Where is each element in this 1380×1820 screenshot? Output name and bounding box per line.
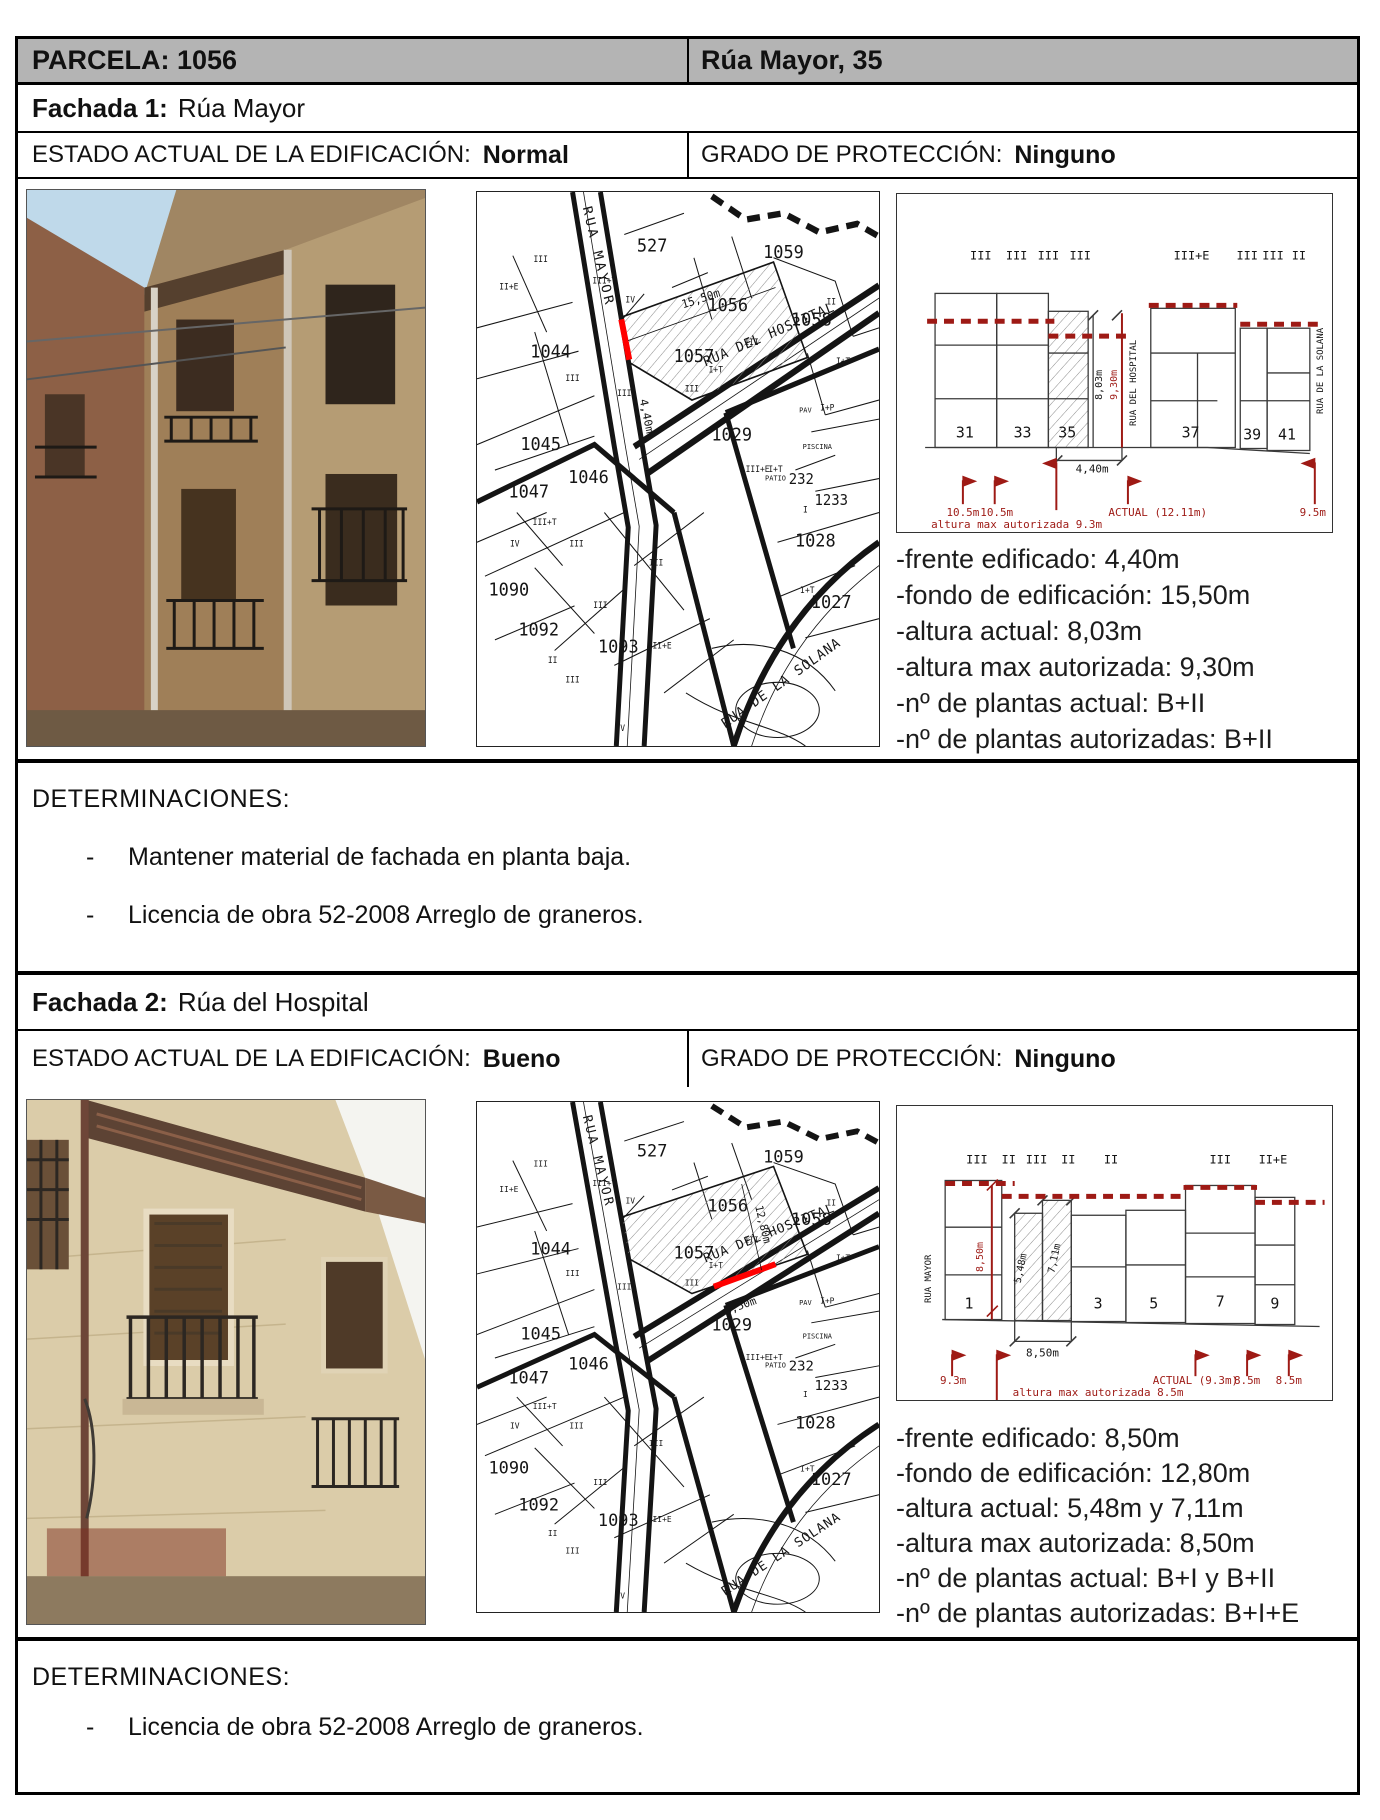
drawing-label: I+T [800, 585, 814, 595]
drawing-label: III [744, 337, 758, 347]
drawing-label: 1233 [814, 493, 848, 510]
drawing-label: RUA DEL HOSPITAL [1129, 340, 1139, 426]
drawing-label: 527 [637, 236, 668, 257]
drawing-label: III [593, 1478, 607, 1487]
drawing-label: III [966, 1153, 988, 1167]
drawing-label: 31 [956, 424, 974, 442]
drawing-label: PISCINA [803, 1332, 833, 1340]
drawing-label: III [617, 1283, 631, 1292]
drawing-label: 1046 [568, 467, 609, 488]
drawing-label: I+T [709, 364, 723, 374]
parcel-address: Rúa Mayor, 35 [701, 45, 883, 76]
drawing-label: 8.5m [1234, 1374, 1261, 1387]
drawing-label: III [1262, 249, 1284, 263]
drawing-label: I+T [800, 1464, 815, 1473]
drawing-label: 1047 [508, 482, 549, 503]
drawing-label: IV [510, 1421, 520, 1430]
drawing-label: 3 [1094, 1295, 1103, 1313]
drawing-label: III [565, 373, 579, 383]
drawing-label: II+E [653, 1515, 672, 1524]
grado-1-value: Ninguno [1014, 141, 1115, 170]
drawing-label: 8,03m [1094, 370, 1105, 400]
determinacion-text: Licencia de obra 52-2008 Arreglo de gran… [128, 901, 644, 930]
drawing-label: PATIO [765, 473, 786, 482]
detail-line: -frente edificado: 8,50m [896, 1421, 1356, 1456]
header-row: PARCELA: 1056 Rúa Mayor, 35 [18, 39, 1357, 85]
estado-1-cell: ESTADO ACTUAL DE LA EDIFICACIÓN: Normal [18, 133, 689, 177]
drawing-label: 8,50m [975, 1242, 986, 1272]
drawing-label: III [1236, 249, 1258, 263]
drawing-label: III [569, 1421, 583, 1430]
detail-line: -altura actual: 5,48m y 7,11m [896, 1491, 1356, 1526]
drawing-label: III [593, 600, 607, 610]
drawing-label: 1 [965, 1295, 974, 1313]
drawing-label: III [649, 1439, 663, 1448]
drawing-label: III [685, 1279, 699, 1288]
drawing-label: IV [625, 294, 635, 304]
drawing-label: I+P [820, 402, 834, 412]
elevation-drawing-1: IIIIIIIIIIIIIII+EIIIIIIIIRUA DEL HOSPITA… [896, 193, 1333, 533]
dash-bullet: - [86, 901, 128, 930]
drawing-label: 1029 [711, 1315, 752, 1335]
drawing-label: III+T [533, 517, 557, 527]
drawing-label: 1059 [763, 242, 804, 263]
detail-line: -nº de plantas actual: B+II [896, 685, 1356, 721]
fachada-2-row: Fachada 2: Rúa del Hospital [18, 971, 1357, 1029]
grado-1-cell: GRADO DE PROTECCIÓN: Ninguno [689, 133, 1357, 177]
estado-1-label: ESTADO ACTUAL DE LA EDIFICACIÓN: [32, 141, 471, 169]
drawing-label: II+E [499, 1185, 518, 1194]
facade-photo-1 [26, 189, 426, 747]
content-row-1: RUA MAYORRUA DEL HOSPITALRUA DE LA SOLAN… [18, 179, 1357, 759]
drawing-label: II [1002, 1153, 1016, 1167]
drawing-label: 8.5m [1276, 1374, 1303, 1387]
detail-line: -altura max autorizada: 9,30m [896, 649, 1356, 685]
drawing-label: I+T [768, 464, 782, 474]
drawing-label: 9,30m [1109, 370, 1120, 400]
drawing-label: altura max autorizada 8.5m [1013, 1386, 1184, 1399]
drawing-label: 33 [1014, 424, 1032, 442]
authorized-height-lines [927, 305, 1325, 447]
drawing-label: PATIO [765, 1362, 786, 1370]
drawing-label: 1027 [811, 593, 852, 614]
grado-2-cell: GRADO DE PROTECCIÓN: Ninguno [689, 1031, 1357, 1087]
drawing-label: 1233 [814, 1378, 848, 1394]
determinacion-text: Mantener material de fachada en planta b… [128, 843, 631, 872]
drawing-label: III [565, 674, 579, 684]
grado-2-value: Ninguno [1014, 1045, 1115, 1074]
drawing-label: RUA DE LA SOLANA [719, 635, 844, 732]
determinacion-item: - Licencia de obra 52-2008 Arreglo de gr… [86, 1713, 644, 1742]
drawing-label: 1044 [530, 342, 571, 363]
drawing-label: RUA MAYOR [924, 1254, 934, 1303]
estado-2-cell: ESTADO ACTUAL DE LA EDIFICACIÓN: Bueno [18, 1031, 689, 1087]
drawing-label: III+E [1174, 249, 1210, 263]
drawing-label: III [1026, 1153, 1048, 1167]
drawing-label: III+T [592, 1179, 616, 1188]
drawing-label: III [533, 254, 547, 264]
detail-line: -frente edificado: 4,40m [896, 541, 1356, 577]
detail-line: -nº de plantas autorizadas: B+I+E [896, 1596, 1356, 1631]
detail-line: -nº de plantas autorizadas: B+II [896, 721, 1356, 757]
drawing-label: II [548, 655, 558, 665]
drawing-label: 1093 [598, 637, 639, 658]
drawing-label: II+E [499, 281, 518, 291]
fachada-2-label: Fachada 2: [32, 987, 168, 1018]
drawing-label: III [534, 1160, 548, 1169]
drawing-label: RUA DE LA SOLANA [1316, 327, 1326, 414]
fachada-2-name: Rúa del Hospital [178, 987, 369, 1018]
drawing-label: 5 [1149, 1295, 1158, 1313]
estado-2-row: ESTADO ACTUAL DE LA EDIFICACIÓN: Bueno G… [18, 1029, 1357, 1087]
determinacion-text: Licencia de obra 52-2008 Arreglo de gran… [128, 1713, 644, 1742]
address-cell: Rúa Mayor, 35 [689, 39, 1357, 82]
parcela-number: PARCELA: 1056 [32, 45, 237, 76]
drawing-label: 1058 [791, 1209, 832, 1229]
drawing-label: 9.3m [940, 1374, 967, 1387]
drawing-label: 1046 [568, 1354, 609, 1374]
determinacion-item: - Mantener material de fachada en planta… [86, 843, 631, 872]
drawing-label: 1058 [791, 310, 832, 331]
drawing-label: 35 [1058, 424, 1076, 442]
drawing-label: III+T [533, 1402, 557, 1411]
drawing-label: III [565, 1546, 579, 1555]
drawing-label: PISCINA [803, 442, 833, 451]
determinaciones-2-title: DETERMINACIONES: [18, 1641, 1357, 1692]
drawing-label: 1090 [488, 1457, 529, 1477]
drawing-label: 1059 [763, 1147, 804, 1167]
drawing-label: 527 [637, 1141, 668, 1161]
drawing-label: III+E [746, 464, 770, 474]
drawing-label: I+T [768, 1353, 783, 1362]
drawing-label: I+T [709, 1261, 724, 1270]
drawing-label: III [970, 249, 992, 263]
drawing-label: IV [510, 538, 520, 548]
drawing-label: I [803, 504, 808, 514]
drawing-label: II [1061, 1153, 1075, 1167]
drawing-label: PAV [799, 406, 812, 415]
drawing-label: I [803, 1390, 808, 1399]
determinaciones-2: DETERMINACIONES: - Licencia de obra 52-2… [18, 1637, 1357, 1792]
parcela-cell: PARCELA: 1056 [18, 39, 689, 82]
detail-line: -fondo de edificación: 12,80m [896, 1456, 1356, 1491]
drawing-label: II [548, 1529, 558, 1538]
drawing-label: 1056 [707, 1196, 748, 1216]
drawing-label: 1092 [518, 1495, 559, 1515]
detail-line: -altura max autorizada: 8,50m [896, 1526, 1356, 1561]
drawing-label: 1028 [795, 1412, 836, 1432]
drawing-label: III [649, 557, 663, 567]
drawing-label: IV [616, 1591, 626, 1600]
estado-2-label: ESTADO ACTUAL DE LA EDIFICACIÓN: [32, 1045, 471, 1073]
elevation-2-labels: RUA MAYORIIIIIIIIIIIIIIIII+E135798,50m5,… [924, 1153, 1302, 1399]
drawing-label: 1090 [488, 580, 529, 601]
drawing-label: 232 [789, 1359, 814, 1375]
drawing-label: III [1006, 249, 1028, 263]
drawing-label: III+E [746, 1353, 770, 1362]
drawing-label: II+E [1259, 1153, 1288, 1167]
height-flag-markers [963, 458, 1315, 510]
dash-bullet: - [86, 1713, 128, 1742]
drawing-label: 1047 [508, 1368, 549, 1388]
cadastral-map-1: RUA MAYORRUA DEL HOSPITALRUA DE LA SOLAN… [476, 191, 880, 747]
estado-2-value: Bueno [483, 1045, 561, 1074]
content-row-2: RUA MAYORRUA DEL HOSPITALRUA DE LA SOLAN… [18, 1087, 1357, 1637]
drawing-label: II [826, 296, 836, 306]
fachada-1-name: Rúa Mayor [178, 93, 305, 124]
elevation-drawing-2: RUA MAYORIIIIIIIIIIIIIIIII+E135798,50m5,… [896, 1105, 1333, 1401]
drawing-label: IV [615, 723, 625, 733]
drawing-label: 1029 [711, 425, 752, 446]
drawing-label: II+E [653, 640, 672, 650]
drawing-label: 1092 [518, 620, 559, 641]
drawing-label: 1093 [598, 1510, 639, 1530]
drawing-label: III [744, 1236, 758, 1245]
drawing-label: II [1104, 1153, 1118, 1167]
determinaciones-1: DETERMINACIONES: - Mantener material de … [18, 759, 1357, 971]
drawing-label: 4,40m [1076, 462, 1109, 475]
drawing-label: ACTUAL (12.11m) [1108, 506, 1207, 519]
drawing-label: II [826, 1199, 836, 1208]
detail-line: -fondo de edificación: 15,50m [896, 577, 1356, 613]
parcel-data-list-2: -frente edificado: 8,50m -fondo de edifi… [896, 1421, 1356, 1631]
estado-1-value: Normal [483, 141, 569, 170]
drawing-label: 232 [789, 471, 814, 488]
drawing-label: IV [625, 1197, 635, 1206]
drawing-label: 1044 [530, 1239, 571, 1259]
drawing-label: 8,50m [1026, 1346, 1059, 1359]
drawing-label: III+T [592, 275, 616, 285]
parcel-data-list-1: -frente edificado: 4,40m -fondo de edifi… [896, 541, 1356, 757]
drawing-label: 9.5m [1300, 506, 1327, 519]
drawing-label: 1045 [520, 1324, 561, 1344]
drawing-label: III [1069, 249, 1091, 263]
drawing-label: III [565, 1269, 579, 1278]
fachada-1-label: Fachada 1: [32, 93, 168, 124]
detail-line: -altura actual: 8,03m [896, 613, 1356, 649]
drawing-label: 9 [1270, 1295, 1279, 1313]
drawing-label: 1057 [674, 1242, 715, 1262]
drawing-label: 41 [1278, 426, 1296, 444]
drawing-label: III [1038, 249, 1060, 263]
drawing-label: III [569, 538, 583, 548]
drawing-label: III [685, 383, 699, 393]
drawing-label: III [1210, 1153, 1232, 1167]
drawing-label: I+T [836, 356, 850, 366]
grado-1-label: GRADO DE PROTECCIÓN: [701, 141, 1002, 169]
determinaciones-1-title: DETERMINACIONES: [18, 763, 1357, 814]
parcel-record-sheet: PARCELA: 1056 Rúa Mayor, 35 Fachada 1: R… [15, 36, 1360, 1795]
drawing-label: III [617, 388, 631, 398]
detail-line: -nº de plantas actual: B+I y B+II [896, 1561, 1356, 1596]
facade-photo-2 [26, 1099, 426, 1625]
drawing-label: II [1292, 249, 1306, 263]
drawing-label: 1028 [795, 531, 836, 552]
determinacion-item: - Licencia de obra 52-2008 Arreglo de gr… [86, 901, 644, 930]
drawing-label: I+P [820, 1296, 835, 1305]
dash-bullet: - [86, 843, 128, 872]
drawing-label: altura max autorizada 9.3m [931, 518, 1102, 531]
drawing-label: PAV [799, 1299, 812, 1307]
fachada-1-row: Fachada 1: Rúa Mayor [18, 85, 1357, 133]
drawing-label: I+T [836, 1253, 851, 1262]
drawing-label: RUA DE LA SOLANA [719, 1510, 844, 1599]
drawing-label: 39 [1243, 426, 1261, 444]
drawing-label: 1045 [520, 434, 561, 455]
estado-1-row: ESTADO ACTUAL DE LA EDIFICACIÓN: Normal … [18, 133, 1357, 179]
drawing-label: 1027 [811, 1469, 852, 1489]
cadastral-map-2: RUA MAYORRUA DEL HOSPITALRUA DE LA SOLAN… [476, 1101, 880, 1613]
drawing-label: 7 [1216, 1293, 1225, 1311]
grado-2-label: GRADO DE PROTECCIÓN: [701, 1045, 1002, 1073]
drawing-label: 37 [1182, 424, 1200, 442]
